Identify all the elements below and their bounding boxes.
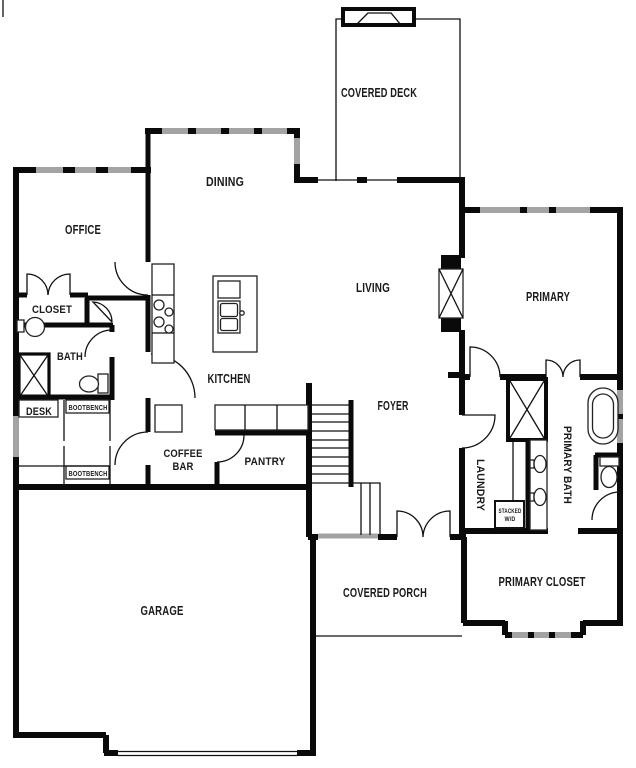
label-dining: DINING [206,175,244,189]
laundry-door-arc [462,415,495,448]
bathtub-icon [588,388,618,444]
wc-door-arc [592,492,620,520]
fireplace-icon [439,255,463,332]
entry-double-door-arcs [397,511,450,537]
garage-door-line [118,752,297,756]
label-coffee-bar-1: COFFEE [164,448,203,460]
sink-icon [17,318,45,337]
wc-toilet-icon [600,457,619,488]
primary-door-arc [470,347,500,377]
kitchen-counter [215,405,308,430]
kitchen-fixtures [152,264,308,432]
label-bootbench-lower: BOOTBENCH [69,469,108,478]
coffee-bar-counter [155,405,182,432]
label-kitchen: KITCHEN [208,372,251,386]
primary-shower-icon [508,379,546,440]
label-garage: GARAGE [141,604,184,618]
label-laundry: LAUNDRY [474,459,486,511]
shower-icon [19,354,49,397]
office-door-arc [115,262,148,295]
primary-bath-double-door-arcs [546,360,580,377]
label-covered-porch: COVERED PORCH [343,586,427,600]
stairs-icon [311,405,380,535]
label-office: OFFICE [65,223,101,237]
bath-door-arc [85,330,112,357]
vanity-icon [530,440,547,530]
label-pantry: PANTRY [245,456,286,468]
label-bath: BATH [57,351,83,363]
label-stacked-wd-1: STACKED [499,509,522,515]
mudroom-door-arc [115,432,148,465]
closet-door-right-arc [48,274,70,295]
label-closet: CLOSET [32,304,72,316]
label-bootbench-upper: BOOTBENCH [69,403,108,412]
pantry-door-arc [217,435,244,462]
labels: COVERED DECK DINING OFFICE CLOSET BATH D… [26,86,586,618]
label-primary-bath: PRIMARY BATH [561,426,573,504]
label-covered-deck: COVERED DECK [341,86,417,100]
label-desk: DESK [26,406,52,418]
label-stacked-wd-2: W/D [505,517,516,523]
label-primary: PRIMARY [526,290,570,304]
label-living: LIVING [356,281,390,295]
hall-door-icon [93,302,112,322]
floor-plan-page: COVERED DECK DINING OFFICE CLOSET BATH D… [0,0,636,768]
label-primary-closet: PRIMARY CLOSET [499,575,586,589]
toilet-icon [80,374,109,393]
deck-fireplace-icon [343,9,414,25]
kitchen-island-icon [213,276,257,352]
label-foyer: FOYER [378,399,409,413]
closet-door-left-arc [27,274,48,295]
label-coffee-bar-2: BAR [173,461,194,473]
stove-icon [152,264,174,363]
floor-plan-drawing: COVERED DECK DINING OFFICE CLOSET BATH D… [0,0,636,768]
